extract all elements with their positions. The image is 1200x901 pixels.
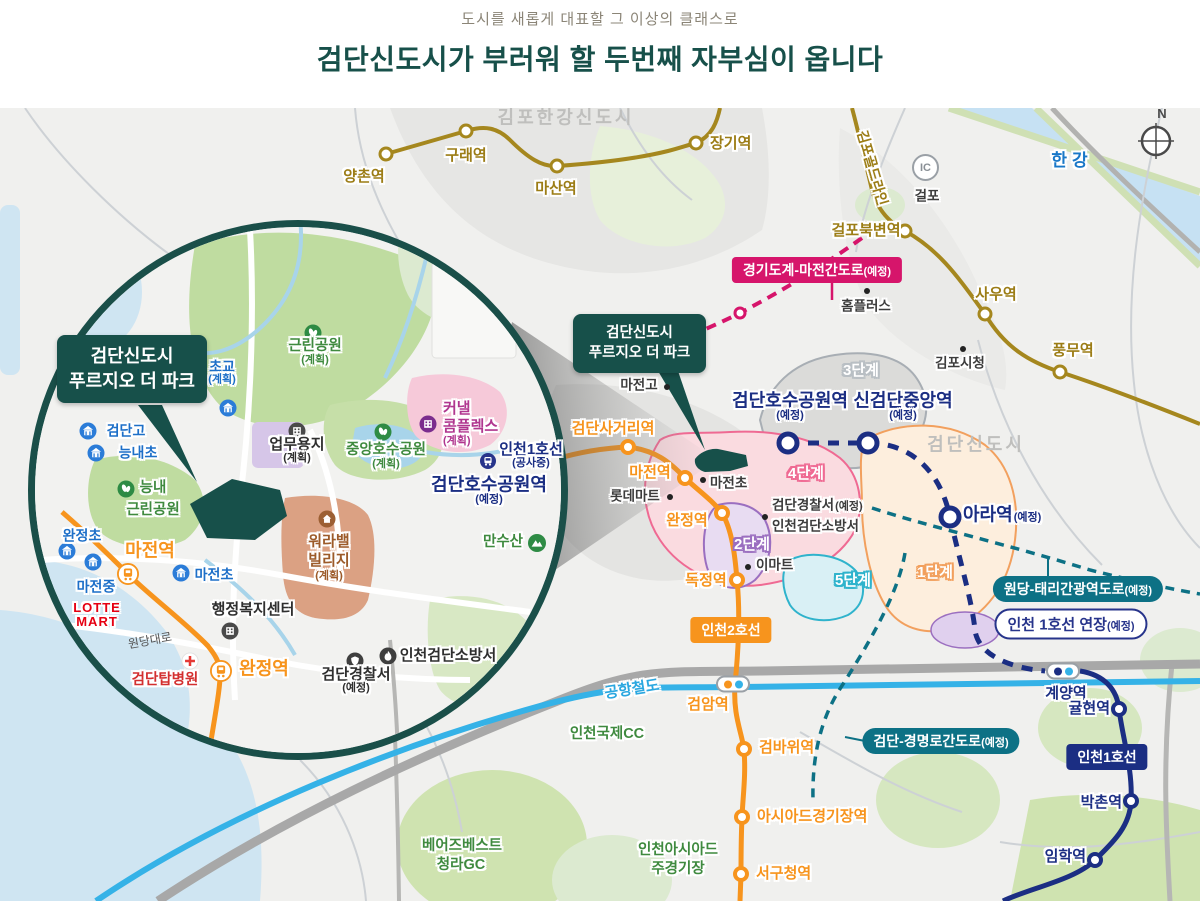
incheon-line2-badge: 인천2호선 <box>690 617 771 643</box>
project-name-line2: 푸르지오 더 파크 <box>69 371 195 391</box>
project-name-line1: 검단신도시 <box>91 346 174 366</box>
ic-badge: IC <box>912 154 939 181</box>
promo-map-page: 도시를 새롭게 대표할 그 이상의 클래스로 검단신도시가 부러워 할 두번째 … <box>0 0 1200 901</box>
line1-extension-badge: 인천 1호선 연장(예정) <box>994 609 1147 640</box>
incheon-line1-badge: 인천1호선 <box>1066 744 1147 770</box>
header-subtitle: 도시를 새롭게 대표할 그 이상의 클래스로 <box>0 8 1200 29</box>
header: 도시를 새롭게 대표할 그 이상의 클래스로 검단신도시가 부러워 할 두번째 … <box>0 0 1200 108</box>
project-callout-inset: 검단신도시 푸르지오 더 파크 <box>57 335 207 403</box>
page-title: 검단신도시가 부러워 할 두번째 자부심이 옵니다 <box>0 38 1200 78</box>
road-badge-gyeonggi-majeon: 경기도계-마전간도로(예정) <box>732 257 902 283</box>
road-badge-wondang-taeri: 원당-태리간광역도로(예정) <box>993 576 1163 602</box>
road-badge-geomdan-gyeongmyeong: 검단-경명로간도로(예정) <box>862 728 1019 754</box>
badge-layer: 검단신도시 푸르지오 더 파크 검단신도시 푸르지오 더 파크 경기도계-마전간… <box>0 0 1200 901</box>
compass-icon: N <box>1136 106 1188 161</box>
project-callout-main: 검단신도시 푸르지오 더 파크 <box>573 314 706 373</box>
